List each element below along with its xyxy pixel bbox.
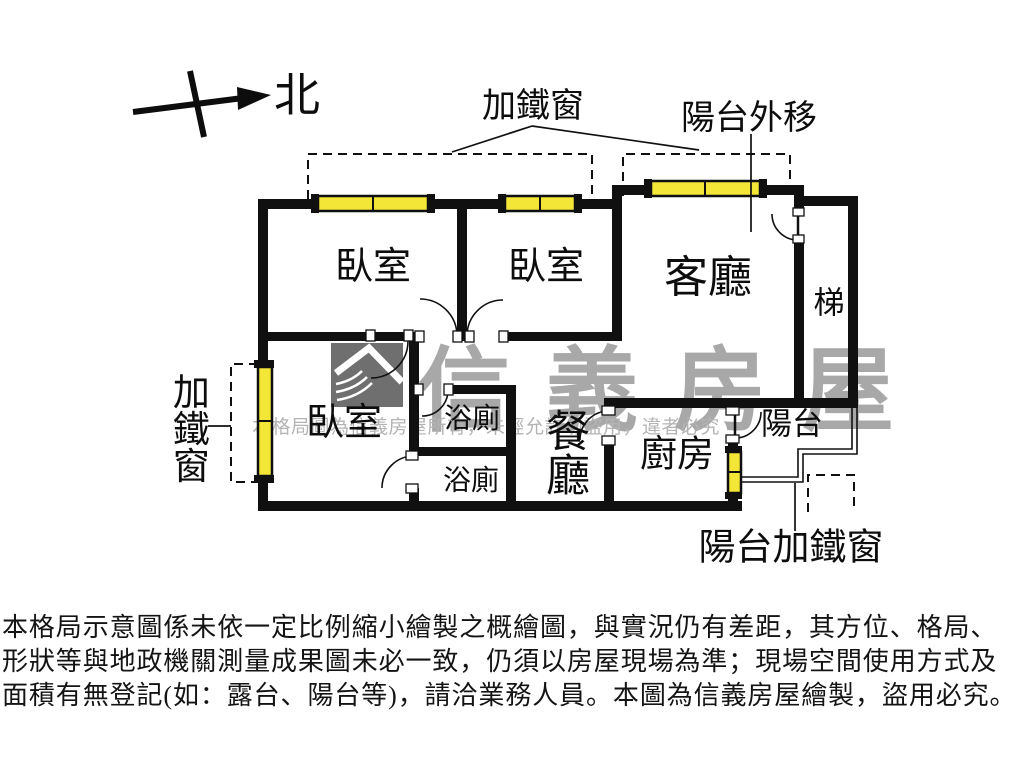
annotation-side-iron-window: 加鐵窗 (167, 373, 206, 484)
room-label-bedroom-top-mid: 臥室 (508, 248, 584, 288)
window-kitchen-side (725, 446, 742, 499)
room-label-bathroom-lower: 浴廁 (443, 466, 499, 495)
room-label-balcony: 陽台 (761, 409, 823, 442)
room-label-bedroom-top-left: 臥室 (335, 248, 411, 288)
dashed-box-side-window (231, 364, 258, 482)
door-bath-lower (382, 456, 414, 488)
window-living (644, 179, 767, 198)
wall-stair-divider (794, 240, 804, 408)
room-label-living: 客廳 (664, 255, 752, 301)
wall-living-left (612, 195, 622, 341)
door-bedroom1 (420, 299, 457, 336)
wall-bedroom-divider (457, 199, 467, 341)
north-label: 北 (274, 72, 320, 120)
wall-kitchen-left (604, 440, 614, 511)
wall-bath-divider (409, 447, 516, 456)
window-bedroom3-side (254, 360, 274, 483)
annotation-top-iron-window: 加鐵窗 (482, 89, 584, 125)
annotation-balcony-iron-window: 陽台加鐵窗 (699, 530, 884, 569)
wall-hall-right (503, 332, 622, 341)
annotation-balcony-extended: 陽台外移 (681, 101, 817, 137)
disclaimer-line-3: 面積有無登記(如：露台、陽台等)，請洽業務人員。本圖為信義房屋繪製，盜用必究。 (2, 675, 1016, 712)
door-balcony (735, 412, 761, 438)
disclaimer-line-2: 形狀等與地政機關測量成果圖未必一致，仍須以房屋現場為準；現場空間使用方式及 (2, 641, 997, 678)
north-arrow (133, 71, 271, 137)
window-bedroom1 (311, 194, 435, 213)
dashed-box-top-windows (308, 154, 592, 199)
window-bedroom2 (498, 194, 582, 213)
room-label-bedroom-bottom-left: 臥室 (306, 404, 382, 444)
wall-bath-top (448, 385, 516, 394)
leader-top-iron-left (452, 126, 532, 152)
wall-hall-left (258, 332, 420, 341)
leader-top-iron-right (532, 126, 699, 150)
floor-plan-image: 信義房屋 本格局圖為信義房屋所有，未經允許勿盜用，違者必究 (0, 0, 1024, 768)
dashed-box-balcony-iron (808, 475, 854, 512)
disclaimer-line-1: 本格局示意圖係未依一定比例縮小繪製之概繪圖，與實況仍有差距，其方位、格局、 (2, 607, 997, 644)
wall-bedroom3-right-a (409, 341, 419, 456)
wall-outer-bottom (258, 501, 742, 511)
room-label-bathroom-upper: 浴廁 (444, 404, 500, 433)
wall-outer-right (848, 196, 858, 408)
room-label-dining: 餐廳 (540, 408, 586, 496)
sinyi-logo-watermark (331, 343, 403, 407)
room-label-stairs: 梯 (814, 288, 845, 321)
room-label-kitchen: 廚房 (640, 437, 714, 476)
